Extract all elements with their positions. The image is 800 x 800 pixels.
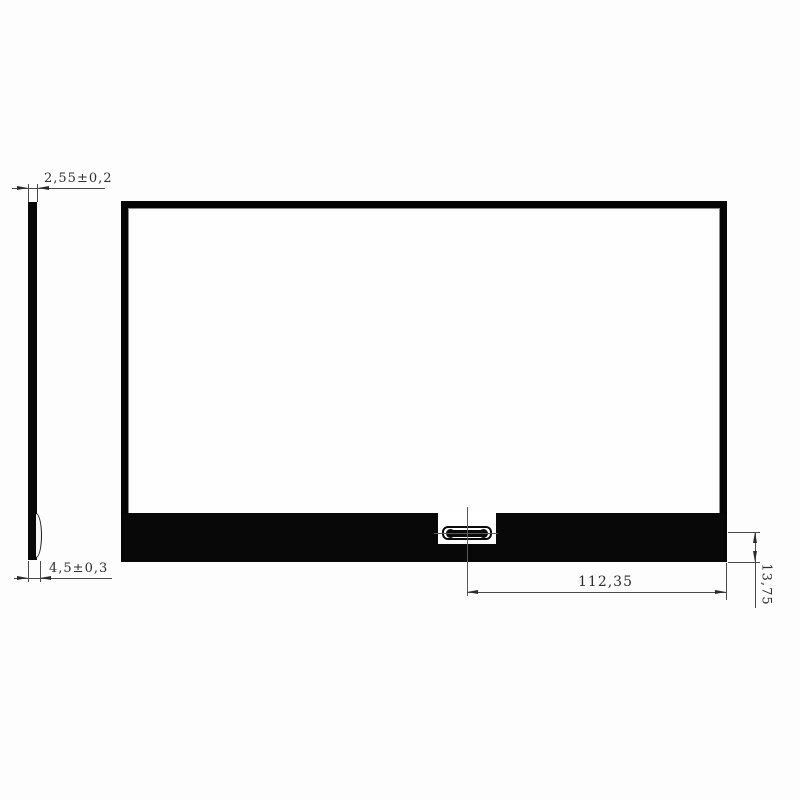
side-view-panel-profile (28, 202, 37, 560)
dimension-line (467, 592, 726, 593)
extension-line (28, 184, 29, 202)
dimension-line (14, 578, 112, 579)
dimension-line (755, 532, 756, 608)
arrowhead-right-icon (17, 576, 28, 580)
dimension-label-connector-offset-x: 112,35 (578, 575, 633, 589)
dimension-label-panel-thickness: 2,55±0,2 (44, 172, 113, 185)
arrowhead-left-icon (467, 590, 478, 594)
arrowhead-up-icon (753, 532, 757, 543)
drawing-canvas: 2,55±0,2 4,5±0,3 112,35 13,75 (0, 0, 800, 800)
arrowhead-left-icon (40, 576, 51, 580)
dimension-label-total-thickness: 4,5±0,3 (49, 562, 108, 575)
connector-centerline-horizontal (434, 533, 498, 534)
bottom-board-strip (123, 513, 725, 562)
panel-outline (121, 201, 727, 562)
dimension-label-connector-offset-y: 13,75 (760, 563, 773, 607)
arrowhead-left-icon (38, 186, 49, 190)
side-view-connector-bump (36, 513, 42, 558)
arrowhead-down-icon (753, 551, 757, 562)
arrowhead-right-icon (715, 590, 726, 594)
extension-line (726, 563, 727, 600)
connector-centerline-vertical (467, 507, 468, 596)
arrowhead-right-icon (17, 186, 28, 190)
